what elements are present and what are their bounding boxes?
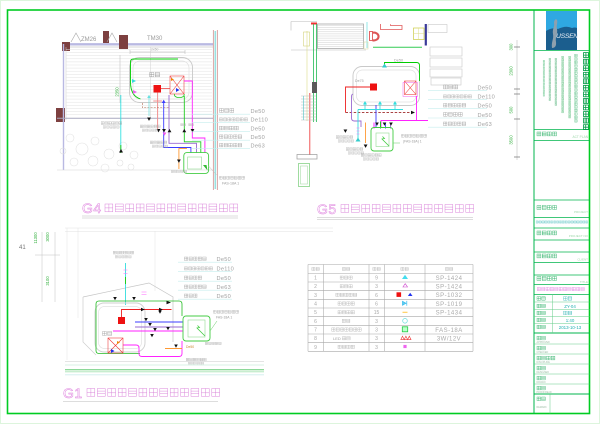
svg-text:3: 3	[375, 336, 378, 342]
svg-text:De110: De110	[217, 267, 235, 273]
svg-text:FAS-18A 1: FAS-18A 1	[222, 182, 239, 186]
svg-text:1: 1	[314, 276, 317, 282]
svg-text:REMARK: REMARK	[537, 406, 548, 409]
svg-text:De50: De50	[478, 104, 493, 110]
svg-text:G4: G4	[82, 200, 102, 216]
svg-text:3000: 3000	[45, 232, 50, 242]
svg-text:DISCIPLINE: DISCIPLINE	[537, 361, 551, 364]
svg-text:3100: 3100	[45, 276, 50, 286]
svg-text:3: 3	[375, 319, 378, 325]
svg-text:8: 8	[314, 336, 317, 342]
svg-text:De110: De110	[478, 95, 496, 101]
svg-text:De50: De50	[217, 276, 232, 282]
svg-text:De50: De50	[251, 127, 266, 133]
svg-text:2013-10-13: 2013-10-13	[559, 325, 582, 330]
svg-text:TM30: TM30	[147, 36, 163, 42]
svg-text:41: 41	[19, 245, 26, 251]
svg-text:SP-1424: SP-1424	[436, 285, 463, 291]
svg-text:PROJECT: PROJECT	[574, 210, 588, 214]
svg-text:De50: De50	[186, 345, 194, 349]
svg-text:DESIGNED: DESIGNED	[537, 371, 550, 374]
svg-text:3: 3	[375, 327, 378, 333]
svg-text:G1: G1	[63, 385, 83, 401]
svg-text:CLIENT: CLIENT	[577, 258, 588, 262]
svg-text:4: 4	[314, 301, 317, 307]
svg-text:PROOFREAD: PROOFREAD	[537, 391, 552, 394]
svg-text:SP-1032: SP-1032	[436, 293, 463, 299]
svg-text:FAS-18A: FAS-18A	[435, 328, 463, 334]
svg-text:FAS-18A 1: FAS-18A 1	[216, 316, 232, 320]
svg-text:3: 3	[375, 284, 378, 290]
svg-text:300: 300	[509, 43, 514, 51]
svg-text:ACT PLAN: ACT PLAN	[572, 135, 588, 139]
svg-text:De50: De50	[478, 86, 493, 92]
svg-text:3: 3	[314, 293, 317, 299]
svg-text:(FAS-18A) 1: (FAS-18A) 1	[403, 140, 422, 144]
svg-text:2: 2	[314, 284, 317, 290]
svg-text:3W/12V: 3W/12V	[437, 337, 461, 343]
svg-text:De50: De50	[251, 109, 266, 115]
svg-text:SP-1424: SP-1424	[436, 276, 463, 282]
svg-text:7: 7	[314, 327, 317, 333]
svg-text:15: 15	[374, 310, 380, 316]
svg-text:De63: De63	[217, 285, 232, 291]
svg-text:2x50: 2x50	[151, 48, 158, 52]
svg-text:6: 6	[375, 293, 378, 299]
svg-text:3500: 3500	[509, 135, 514, 145]
svg-text:De110: De110	[251, 118, 269, 124]
svg-text:5: 5	[314, 310, 317, 316]
svg-text:De50: De50	[217, 294, 232, 300]
svg-text:6: 6	[314, 319, 317, 325]
svg-text:De63: De63	[251, 144, 266, 150]
svg-text:6: 6	[375, 301, 378, 307]
svg-text:G5: G5	[317, 201, 337, 217]
svg-text:DRAWN: DRAWN	[537, 381, 546, 384]
svg-text:ZY-04: ZY-04	[564, 304, 576, 309]
svg-text:2350: 2350	[115, 87, 120, 97]
svg-text:2300: 2300	[509, 66, 514, 76]
svg-text:1:40: 1:40	[566, 318, 575, 323]
svg-text:9: 9	[314, 345, 317, 351]
svg-text:SP-1434: SP-1434	[436, 311, 463, 317]
svg-text:APPROVED: APPROVED	[537, 341, 551, 344]
svg-text:CHECKED: CHECKED	[537, 351, 549, 354]
svg-text:De50: De50	[394, 59, 403, 63]
svg-text:11300: 11300	[33, 232, 38, 244]
svg-text:ZM26: ZM26	[81, 37, 97, 43]
svg-text:LED: LED	[333, 336, 341, 341]
svg-text:De63: De63	[478, 122, 493, 128]
svg-text:De50: De50	[217, 257, 232, 263]
svg-text:9: 9	[375, 276, 378, 282]
svg-text:De75: De75	[355, 79, 364, 83]
svg-text:USSEN: USSEN	[556, 33, 578, 40]
svg-text:500: 500	[509, 106, 514, 114]
svg-text:SP-1019: SP-1019	[436, 302, 463, 308]
svg-text:De50: De50	[251, 135, 266, 141]
svg-text:3: 3	[375, 345, 378, 351]
svg-text:PROJECT NO: PROJECT NO	[569, 234, 589, 238]
svg-text:TITLE: TITLE	[580, 280, 588, 284]
svg-text:De50: De50	[478, 113, 493, 119]
